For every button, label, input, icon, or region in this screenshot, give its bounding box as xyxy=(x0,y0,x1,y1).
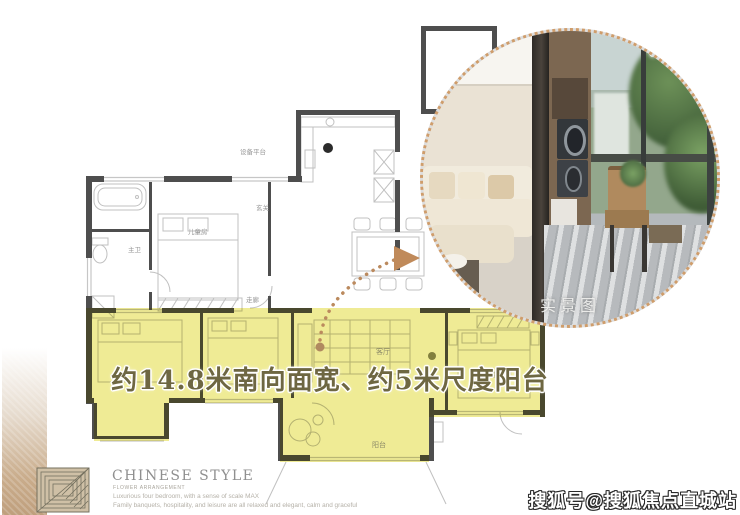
footer-description-line2: Family banquets, hospitality, and leisur… xyxy=(113,502,357,509)
photo-inset: 实景图 xyxy=(420,28,720,328)
leader-start-dot xyxy=(316,343,325,352)
room-label-bath: 主卫 xyxy=(128,245,142,254)
room-label-balcony: 阳台 xyxy=(372,440,386,449)
room-label-kids-room: 儿童房 xyxy=(188,227,208,236)
footer-subtitle: FLOWER ARRANGEMENT xyxy=(113,485,185,491)
room-label-living-room: 客厅 xyxy=(376,347,390,356)
room-label-equipment-platform: 设备平台 xyxy=(240,147,266,156)
photo-caption: 实景图 xyxy=(423,292,717,316)
photo-dryer xyxy=(557,160,588,197)
footer-title: CHINESE STYLE xyxy=(112,468,254,484)
room-label-entry: 玄关 xyxy=(256,203,270,212)
page: 设备平台 玄关 儿童房 主卫 走廊 客厅 阳台 主人房 约14.8米南向面宽、约… xyxy=(0,0,740,515)
footer-description-line1: Luxurious four bedroom, with a sense of … xyxy=(113,493,259,500)
brand-logo-icon xyxy=(36,467,90,513)
arrow-icon xyxy=(394,246,420,271)
photo-washer xyxy=(557,119,588,159)
room-label-corridor: 走廊 xyxy=(246,295,260,304)
watermark: 搜狐号@搜狐焦点直城站 xyxy=(528,487,737,513)
banner-callout: 约14.8米南向面宽、约5米尺度阳台 xyxy=(110,360,550,397)
